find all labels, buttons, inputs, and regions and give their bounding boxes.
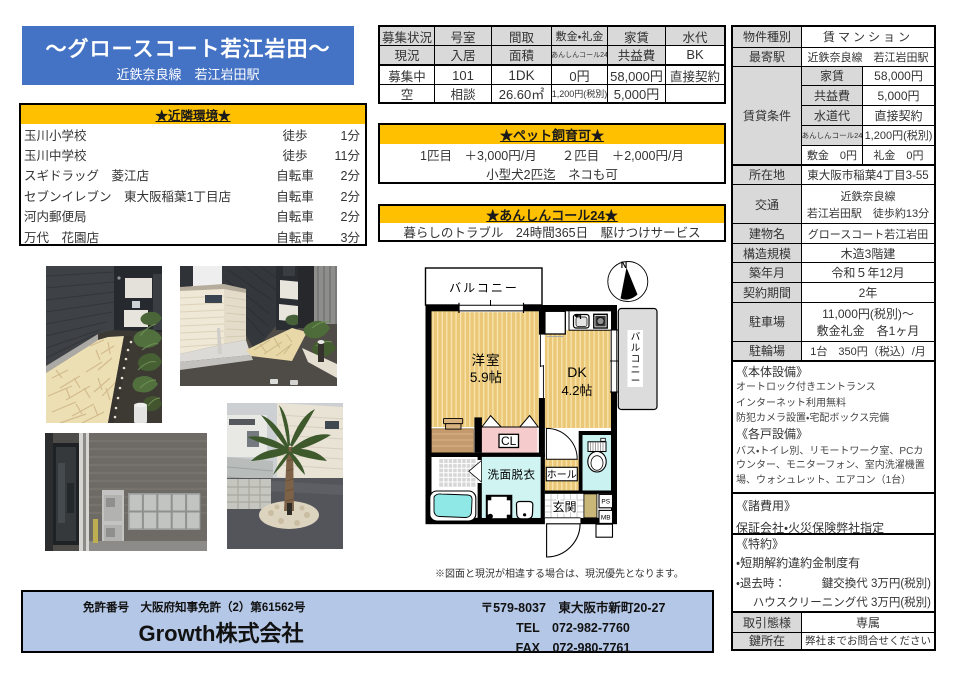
svg-text:CL: CL: [501, 434, 517, 448]
svg-text:MB: MB: [601, 515, 611, 522]
svg-text:バルコニー: バルコニー: [449, 281, 519, 295]
svg-text:玄関: 玄関: [552, 500, 576, 514]
svg-text:洗面脱衣: 洗面脱衣: [488, 468, 536, 482]
svg-text:N: N: [621, 260, 628, 270]
svg-text:ー: ー: [631, 376, 641, 387]
svg-text:コ: コ: [631, 354, 641, 365]
svg-text:バ: バ: [631, 332, 641, 343]
svg-text:洋室: 洋室: [472, 353, 501, 368]
svg-text:PS: PS: [601, 499, 610, 506]
svg-text:4.2帖: 4.2帖: [561, 383, 592, 398]
svg-text:DK: DK: [567, 364, 587, 380]
svg-text:5.9帖: 5.9帖: [470, 370, 502, 385]
svg-text:ホール: ホール: [547, 469, 577, 481]
svg-text:ニ: ニ: [631, 365, 641, 376]
svg-text:ル: ル: [631, 343, 641, 354]
